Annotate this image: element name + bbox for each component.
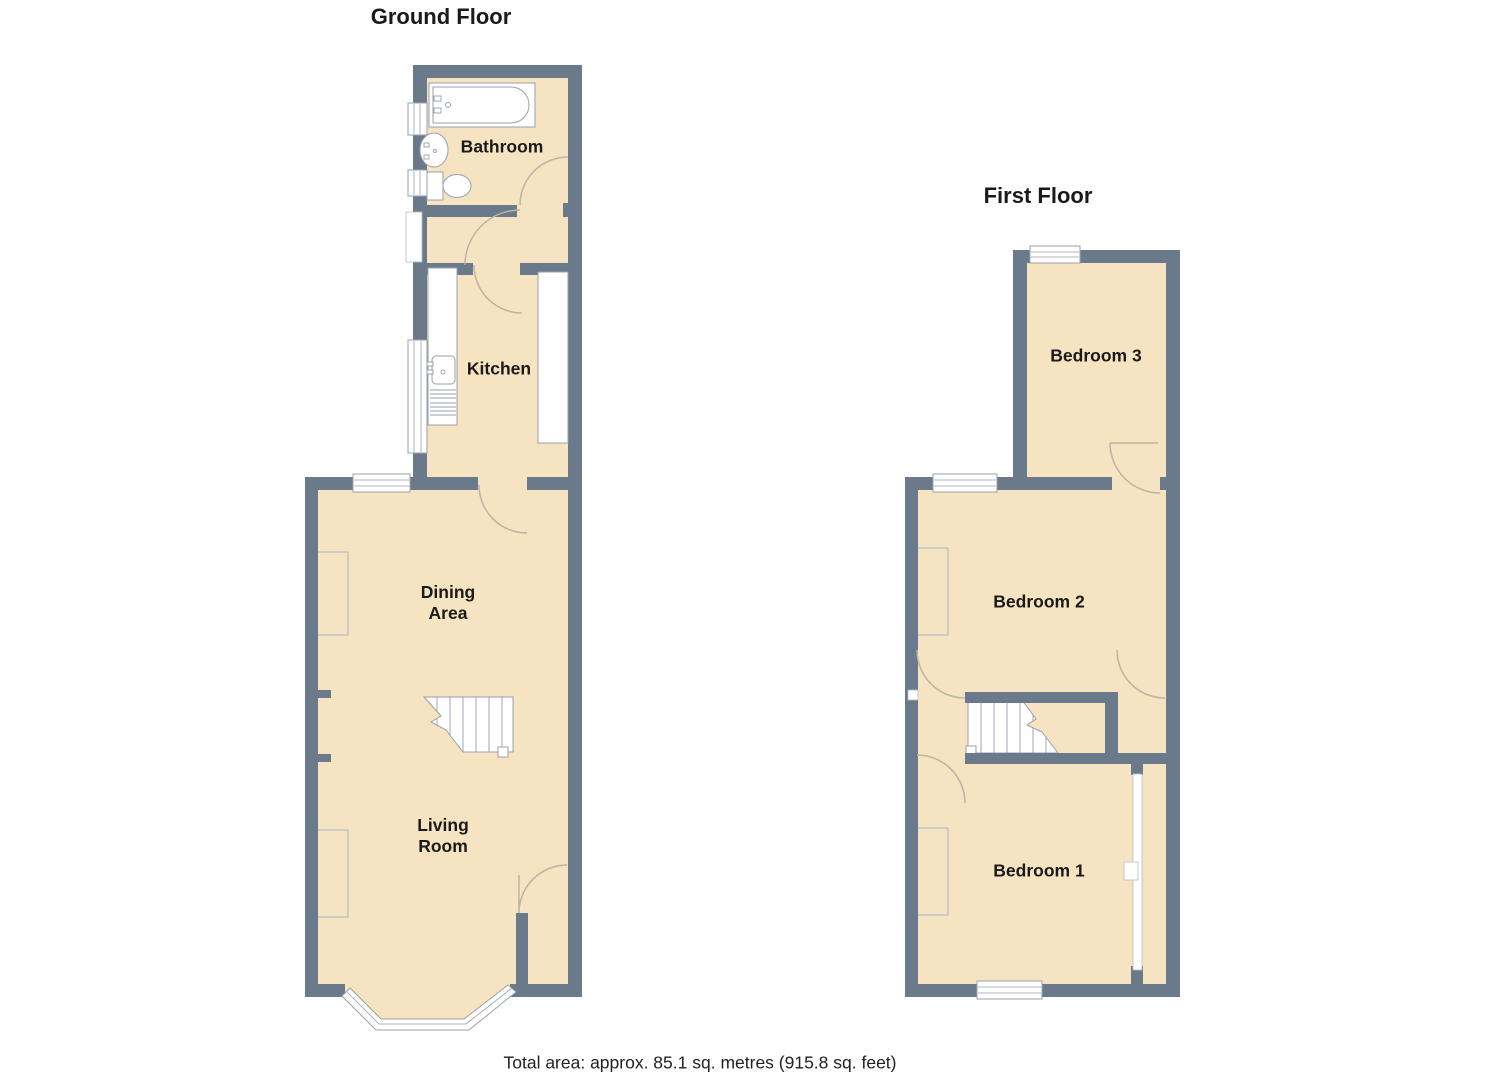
floor-plans-svg [0, 0, 1485, 1080]
window [408, 340, 427, 453]
first-floor-title: First Floor [984, 183, 1093, 209]
toilet [427, 172, 471, 200]
bathtub [429, 83, 535, 127]
hinge-notch [908, 690, 918, 700]
wall-stub [318, 754, 331, 762]
room-label-bathroom: Bathroom [461, 137, 544, 158]
room-label-living: Living Room [417, 815, 469, 857]
wall-stub [318, 690, 331, 698]
ground-floor-plan [305, 65, 582, 1030]
room-label-bedroom3: Bedroom 3 [1050, 346, 1141, 367]
side-door-opening [406, 212, 422, 262]
room-label-dining-line2: Area [421, 603, 475, 624]
ground-floor-title: Ground Floor [371, 4, 512, 30]
room-label-living-line2: Room [417, 836, 469, 857]
window [408, 170, 427, 196]
window [1030, 246, 1080, 263]
room-label-kitchen: Kitchen [467, 359, 531, 380]
landing-wall [965, 753, 1180, 764]
lobby-wall [516, 913, 528, 997]
window [408, 103, 427, 135]
room-label-dining: Dining Area [421, 582, 475, 624]
window [353, 474, 410, 492]
stair-newel-post [498, 747, 508, 757]
room-label-bedroom2: Bedroom 2 [993, 592, 1084, 613]
window [933, 474, 997, 492]
window [977, 981, 1042, 999]
partition-stub [1131, 763, 1143, 775]
first-strip-floor [1016, 253, 1173, 490]
stairwell-wall [965, 692, 1115, 703]
room-label-bedroom1: Bedroom 1 [993, 861, 1084, 882]
room-label-living-line1: Living [417, 815, 469, 836]
bathroom-sink [420, 133, 448, 167]
room-label-dining-line1: Dining [421, 582, 475, 603]
total-area-caption: Total area: approx. 85.1 sq. metres (915… [504, 1053, 897, 1074]
floor-plan-page: Ground Floor First Floor Bathroom Kitche… [0, 0, 1485, 1080]
